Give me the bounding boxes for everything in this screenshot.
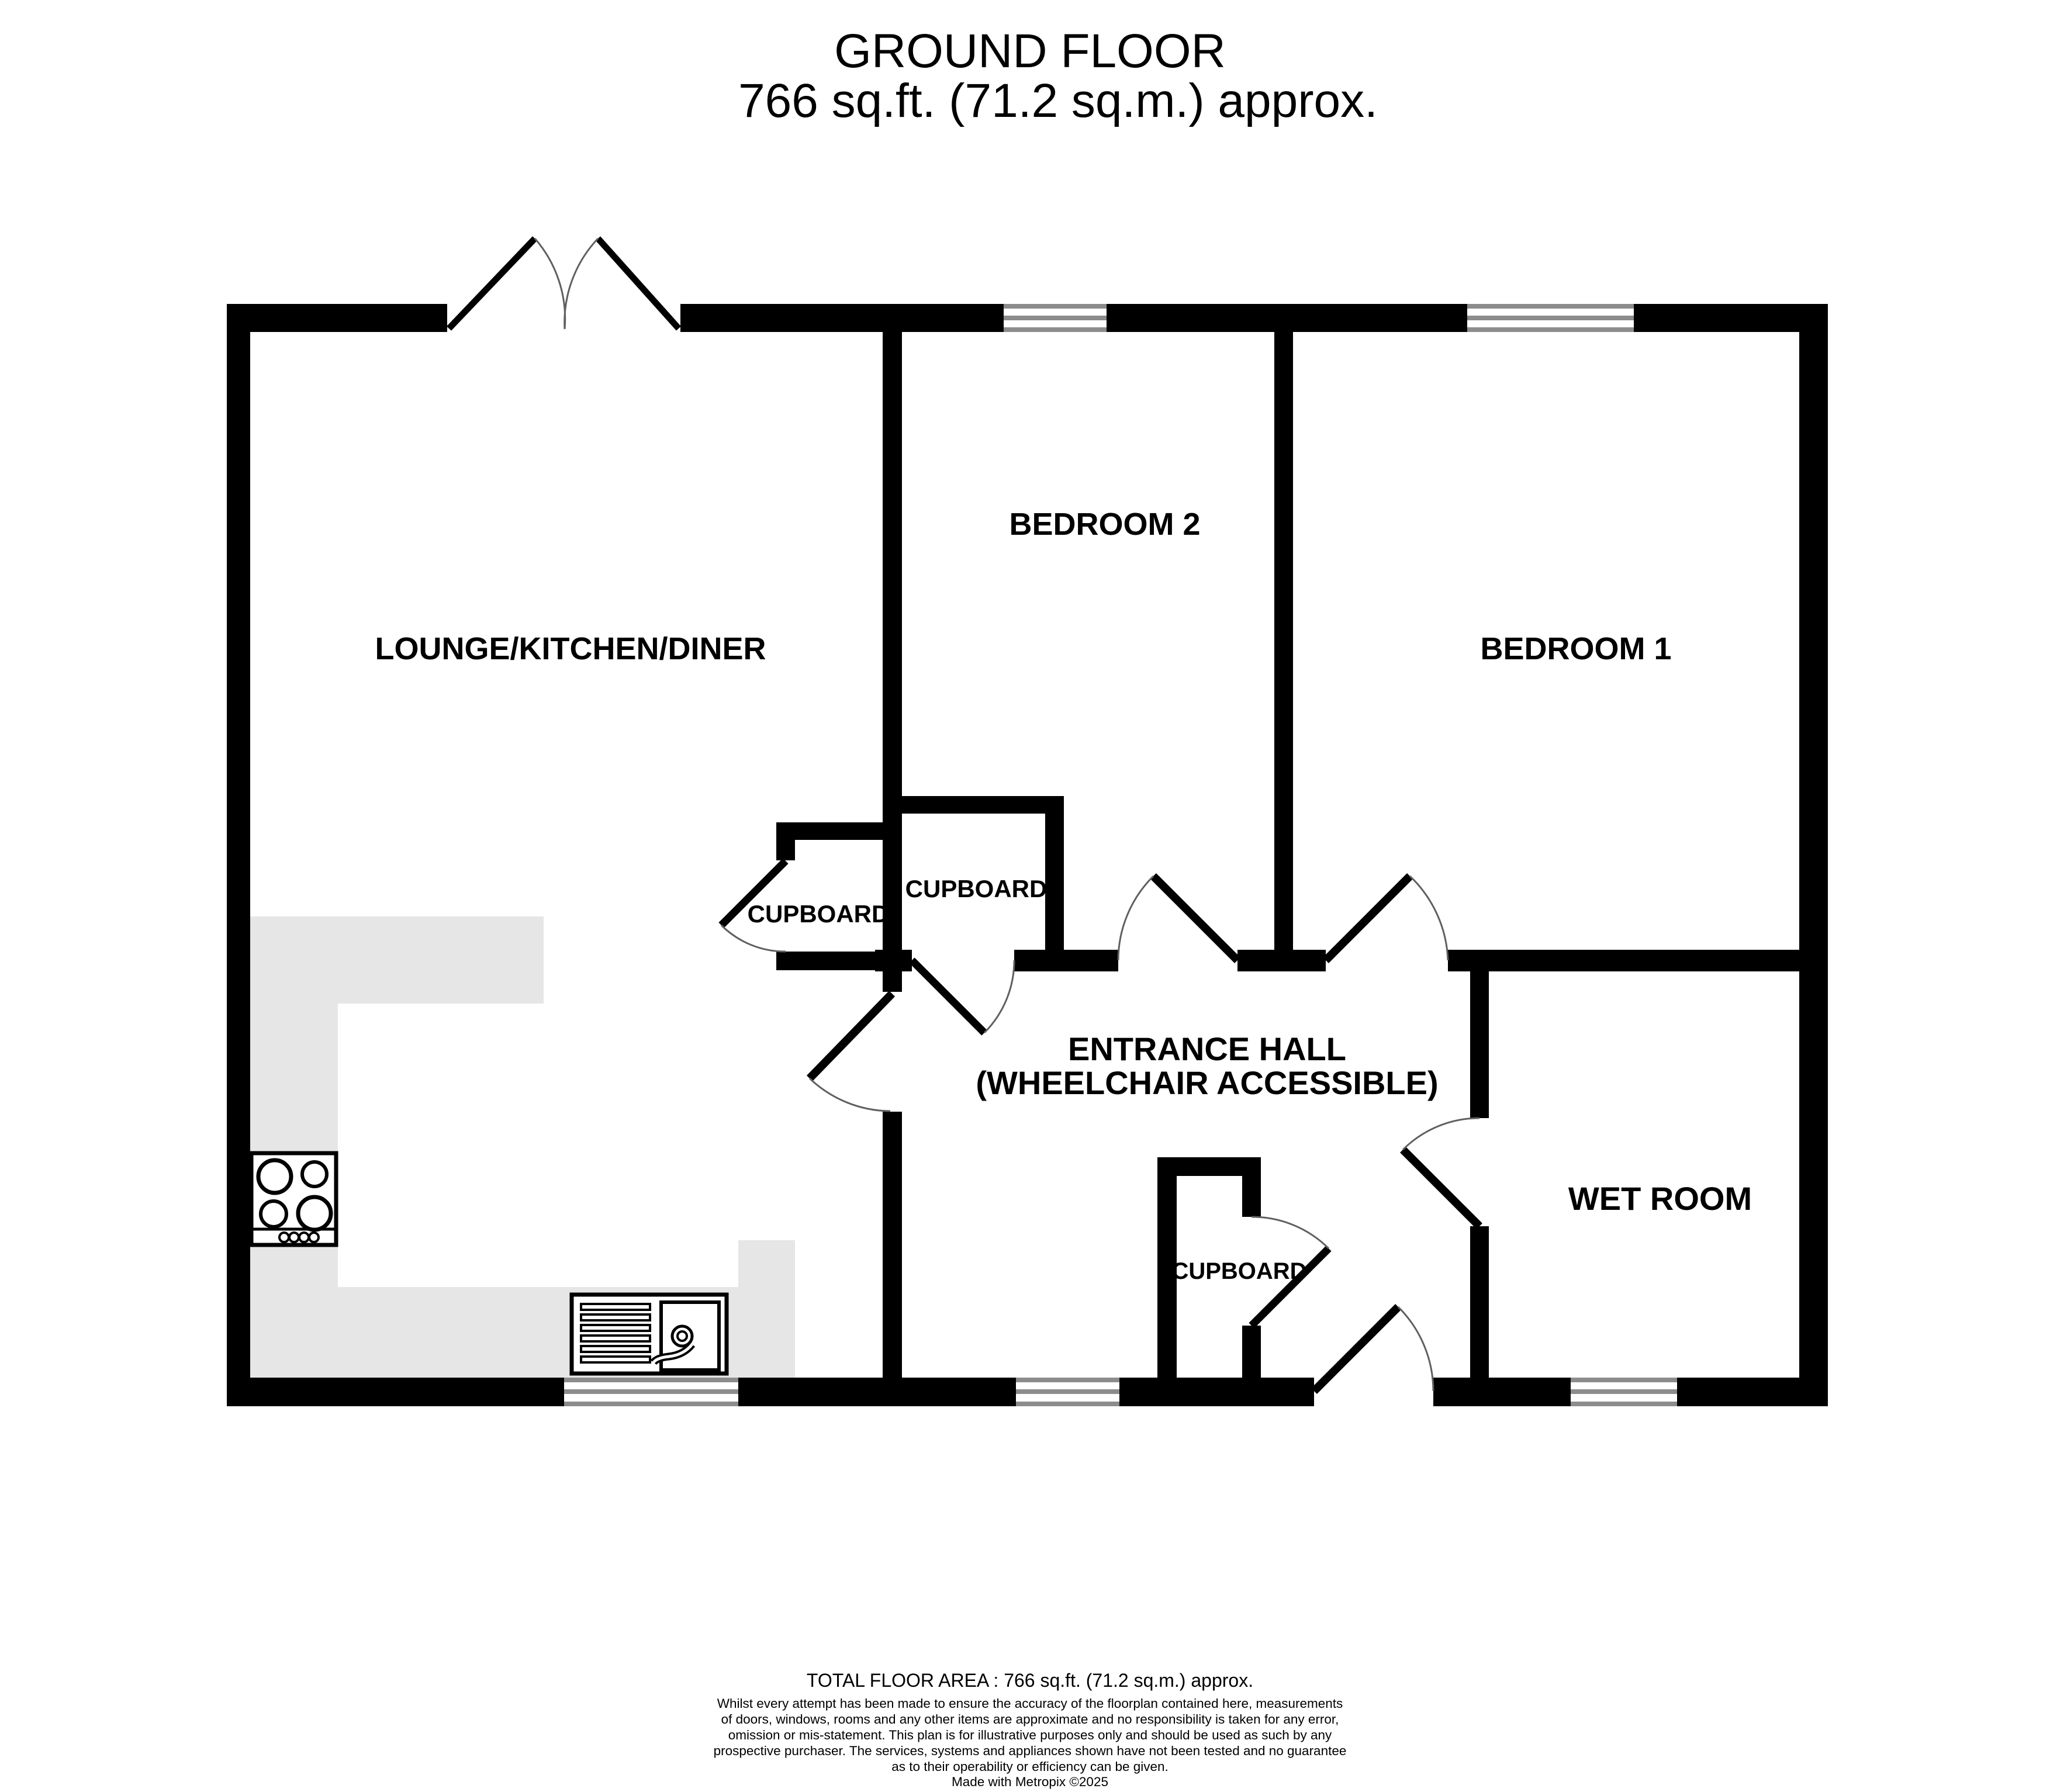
disclaimer-line: Whilst every attempt has been made to en…: [717, 1696, 1343, 1711]
sink-icon: [572, 1295, 727, 1374]
room-label-bedroom2: BEDROOM 2: [1009, 507, 1200, 542]
room-label-bedroom1: BEDROOM 1: [1480, 631, 1671, 666]
floorplan-svg: GROUND FLOOR 766 sq.ft. (71.2 sq.m.) app…: [0, 0, 2050, 1792]
room-label-cupboard-bottom: CUPBOARD: [1171, 1258, 1306, 1284]
room-label-cupboard-left: CUPBOARD: [748, 900, 890, 928]
door-bedroom2: [1118, 876, 1237, 960]
window-hall: [1016, 1378, 1119, 1406]
room-label-entrance-hall-2: (WHEELCHAIR ACCESSIBLE): [976, 1064, 1438, 1101]
plan-subtitle: 766 sq.ft. (71.2 sq.m.) approx.: [738, 74, 1378, 127]
hob-icon: [251, 1153, 336, 1245]
floorplan-page: GROUND FLOOR 766 sq.ft. (71.2 sq.m.) app…: [0, 0, 2050, 1792]
window-kitchen: [564, 1378, 738, 1406]
total-floor-area: TOTAL FLOOR AREA : 766 sq.ft. (71.2 sq.m…: [807, 1670, 1253, 1691]
outer-walls: [227, 304, 1828, 1406]
disclaimer-line: of doors, windows, rooms and any other i…: [721, 1712, 1339, 1727]
interior-walls: [776, 332, 1799, 1378]
disclaimer-line: as to their operability or efficiency ca…: [891, 1759, 1169, 1774]
door-bedroom1: [1326, 876, 1448, 960]
door-cupboard-center: [912, 960, 1014, 1033]
door-front: [1314, 1307, 1433, 1391]
metropix-credit: Made with Metropix ©2025: [952, 1774, 1108, 1789]
room-label-wet-room: WET ROOM: [1568, 1180, 1752, 1217]
disclaimer-line: prospective purchaser. The services, sys…: [714, 1743, 1347, 1758]
plan-title: GROUND FLOOR: [834, 25, 1226, 78]
room-label-cupboard-center: CUPBOARD: [905, 875, 1048, 902]
room-label-entrance-hall: ENTRANCE HALL: [1068, 1030, 1346, 1067]
disclaimer-line: omission or mis-statement. This plan is …: [728, 1728, 1332, 1742]
window-bedroom1: [1467, 304, 1634, 332]
window-bedroom2: [1004, 304, 1107, 332]
window-wetroom: [1571, 1378, 1677, 1406]
door-wetroom: [1403, 1118, 1479, 1226]
french-doors: [449, 238, 679, 329]
room-label-lounge: LOUNGE/KITCHEN/DINER: [375, 631, 766, 666]
door-lounge: [810, 994, 892, 1111]
